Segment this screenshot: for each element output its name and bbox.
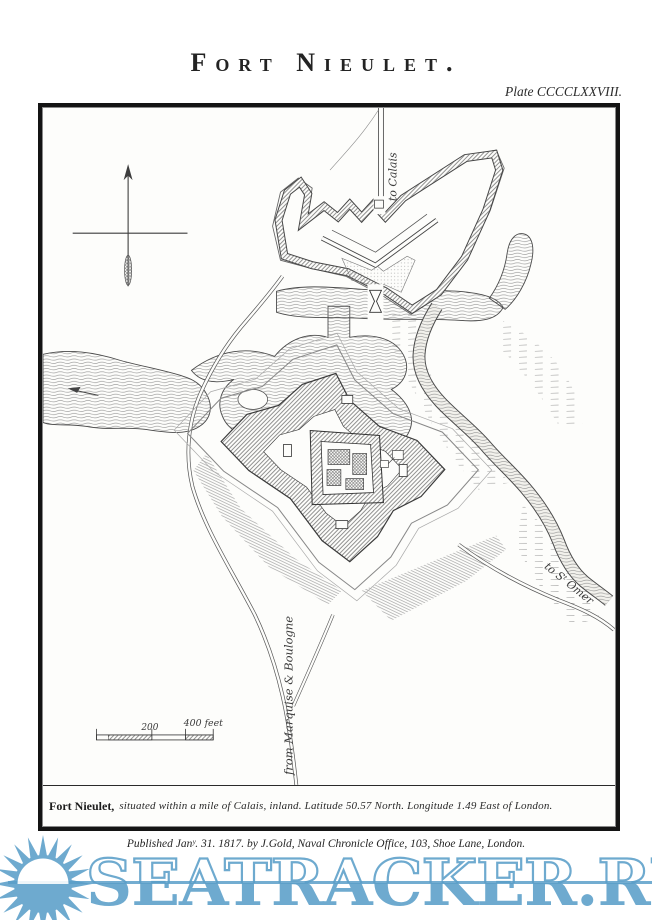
map-caption: Fort Nieulet, situated within a mile of … xyxy=(43,785,615,826)
caption-description: situated within a mile of Calais, inland… xyxy=(119,800,552,812)
sun-logo-icon xyxy=(0,832,95,920)
label-from-marquise-boulogne: from Marquise & Boulogne xyxy=(281,616,295,776)
road-to-calais xyxy=(330,108,383,200)
compass-north-icon xyxy=(73,164,188,286)
scale-bar: 200 400 feet xyxy=(96,718,223,740)
scanned-plate-page: Fort Nieulet. Plate CCCCLXXVIII. xyxy=(0,0,652,920)
label-to-calais: to Calais xyxy=(386,152,399,201)
caption-fort-name: Fort Nieulet, xyxy=(49,799,114,814)
map-frame: 200 400 feet to Calais to Sᵗ Omer from M… xyxy=(38,103,620,831)
plate-title: Fort Nieulet. xyxy=(0,48,652,78)
map-border-inner: 200 400 feet to Calais to Sᵗ Omer from M… xyxy=(42,107,616,827)
plate-number-label: Plate CCCCLXXVIII. xyxy=(505,84,622,100)
scale-mid-label: 200 xyxy=(140,723,158,733)
scale-end-label: 400 feet xyxy=(183,718,223,729)
watermark-site-text: SEATRACKER.RU SEATRACKER.RU xyxy=(86,845,652,920)
river-west xyxy=(43,351,210,432)
hornwork-gate xyxy=(368,284,384,320)
fort-map-engraving: 200 400 feet to Calais to Sᵗ Omer from M… xyxy=(43,108,615,785)
